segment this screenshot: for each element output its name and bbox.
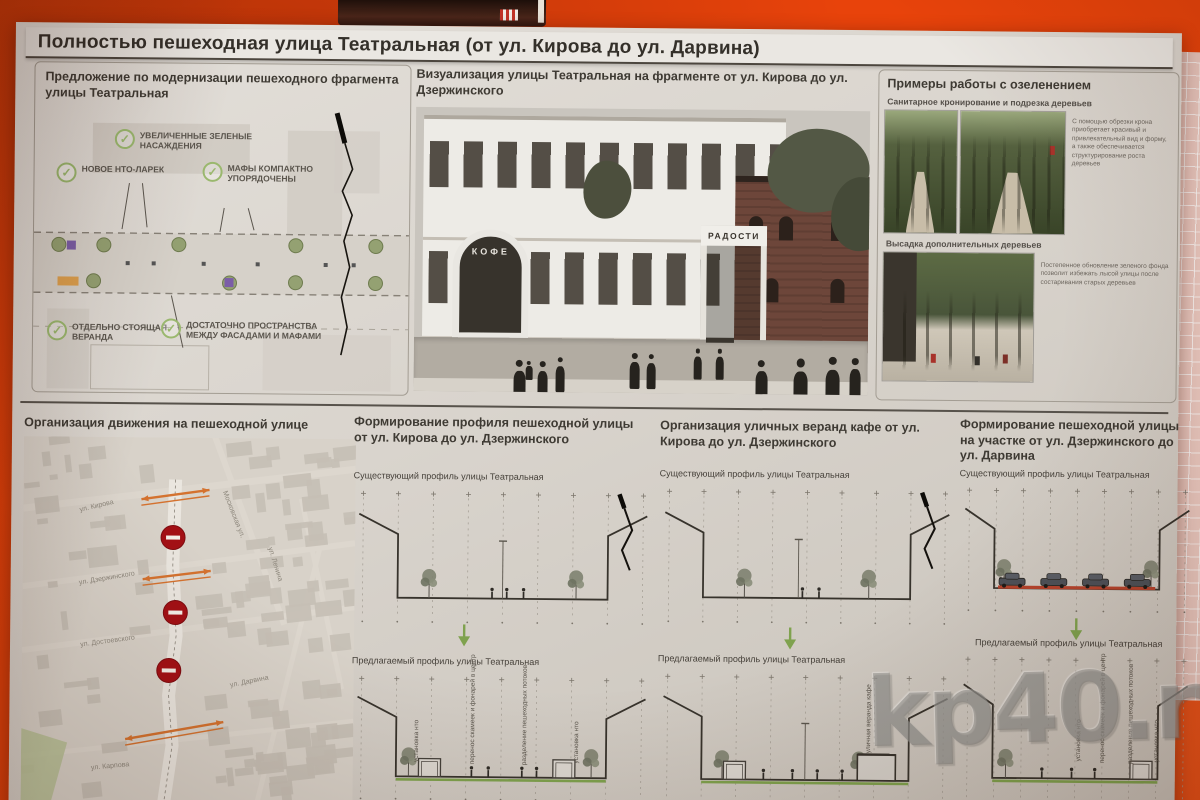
person-silhouette [849, 369, 860, 395]
existing-caption: Существующий профиль улицы Театральная [354, 470, 544, 482]
pruning-photo [960, 111, 1065, 234]
greening-heading: Примеры работы с озеленением [879, 70, 1178, 94]
map-building [87, 545, 119, 568]
pen-mark [924, 507, 935, 569]
check-icon: ✓ [202, 162, 222, 182]
map-building [135, 581, 154, 595]
profile-darvina-heading: Формирование пешеходной улицы на участке… [960, 417, 1190, 466]
pedestrian [975, 356, 980, 365]
grid-line [875, 497, 876, 619]
check-item: ✓ НОВОЕ НТО-ЛАРЕК [56, 162, 164, 183]
map-building [226, 441, 253, 458]
grid-line [536, 684, 537, 796]
down-arrow-icon [1068, 618, 1084, 640]
person-silhouette [793, 371, 807, 395]
grid-line [466, 683, 467, 795]
map-drawing [21, 436, 356, 800]
map-building [37, 655, 50, 670]
greening-note-1: С помощью обрезки крона приобретает крас… [1072, 118, 1172, 170]
street-render: КОФЕ РАДОСТИ [413, 107, 870, 395]
section-outline [665, 512, 950, 599]
section-divider [20, 401, 1168, 414]
cafe-entrance-arch: КОФЕ [452, 229, 529, 340]
check-icon: ✓ [56, 162, 76, 182]
grid-line [1022, 495, 1023, 607]
grid-line [432, 498, 433, 618]
map-building [265, 630, 289, 647]
greening-note-2: Постепенное обновление зеленого фонда по… [1041, 262, 1169, 289]
greening-caption-1: Санитарное кронирование и подрезка дерев… [887, 96, 1092, 108]
map-building [327, 688, 338, 696]
person-silhouette [555, 366, 564, 392]
grid-line [772, 496, 773, 618]
lamp-post [502, 541, 503, 599]
grid-line [1130, 496, 1131, 608]
map-building [137, 559, 149, 575]
map-building [216, 775, 227, 783]
map-building [302, 494, 330, 512]
grid-line [571, 684, 572, 796]
existing-caption: Существующий профиль улицы Театральная [960, 468, 1150, 480]
photo-of-poster: Полностью пешеходная улица Театральная (… [0, 0, 1200, 800]
person-silhouette [694, 357, 702, 380]
check-item: ✓ МАФЫ КОМПАКТНО УПОРЯДОЧЕНЫ [202, 162, 342, 185]
map-building [285, 603, 312, 623]
existing-caption: Существующий профиль улицы Театральная [660, 468, 850, 480]
map-building [269, 780, 294, 797]
paper-sliver [538, 0, 544, 23]
brick-window [830, 279, 844, 303]
grid-line [995, 494, 996, 606]
cafe-sign: КОФЕ [471, 246, 510, 332]
green-surface [701, 782, 908, 784]
person-silhouette [537, 371, 547, 395]
map-building [104, 514, 126, 531]
map-building [139, 464, 155, 484]
bench [706, 338, 734, 343]
map-building [266, 446, 281, 460]
green-surface [396, 779, 606, 781]
down-arrow-icon [456, 624, 472, 646]
brick-window [779, 216, 793, 240]
check-icon: ✓ [115, 129, 135, 149]
proposed-caption: Предлагаемый профиль улицы Театральная [352, 655, 539, 667]
grid-line [1103, 495, 1104, 607]
grid-line [537, 499, 538, 619]
proposed-profile-drawing: установка нто перенос скамеек и фонарей … [350, 670, 651, 800]
profile-svg [958, 482, 1195, 616]
map-building [331, 458, 340, 468]
grid-line [501, 684, 502, 796]
roadway [998, 587, 1155, 589]
map-building [212, 562, 227, 574]
existing-profile-drawing [352, 485, 653, 633]
radosti-portal: РАДОСТИ [700, 226, 767, 353]
map-building [302, 680, 322, 700]
map-building [34, 495, 60, 514]
pedestrian [1003, 354, 1008, 363]
proposed-caption: Предлагаемый профиль улицы Театральная [975, 637, 1162, 649]
existing-profile-drawing [658, 483, 955, 633]
map-building [265, 483, 281, 500]
grid-line [1049, 495, 1050, 607]
map-building [292, 556, 303, 567]
person-silhouette [526, 366, 533, 380]
grid-line [431, 683, 432, 795]
planting-photo [883, 252, 1034, 381]
map-building [38, 709, 62, 727]
pedestrian [931, 354, 936, 363]
profile-svg [658, 483, 955, 628]
striped-chip [500, 9, 518, 20]
watermark: kp40.ru [865, 647, 1200, 769]
street-sign [1050, 146, 1055, 155]
traffic-heading: Организация движения на пешеходной улице [24, 415, 344, 434]
greening-caption-2: Высадка дополнительных деревьев [886, 238, 1042, 249]
grid-line [841, 497, 842, 619]
proposal-panel: Предложение по модернизации пешеходного … [31, 61, 411, 396]
person-silhouette [630, 362, 640, 389]
profile-kirova-heading: Формирование профиля пешеходной улицы от… [354, 414, 634, 448]
map-building [314, 600, 342, 617]
map-building [204, 694, 227, 711]
visualization-heading: Визуализация улицы Театральная на фрагме… [414, 65, 872, 103]
map-building [227, 621, 247, 638]
grid-line [1157, 496, 1158, 608]
check-item: ✓ ДОСТАТОЧНО ПРОСТРАНСТВА МЕЖДУ ФАСАДАМИ… [161, 318, 336, 341]
map-building [42, 451, 52, 466]
check-icon: ✓ [47, 320, 67, 340]
map-building [49, 474, 58, 480]
grid-line [806, 497, 807, 619]
verandas-heading: Организация уличных веранд кафе от ул. К… [660, 418, 950, 452]
profile-svg [352, 485, 653, 628]
person-silhouette [755, 371, 767, 395]
check-icon: ✓ [161, 318, 181, 338]
person-silhouette [716, 357, 724, 380]
grid-line [737, 496, 738, 618]
map-building [244, 758, 255, 767]
map-building [311, 732, 327, 749]
map-building [79, 463, 93, 479]
map-building [87, 677, 100, 690]
map-building [308, 637, 324, 653]
greening-panel: Примеры работы с озеленением Санитарное … [875, 69, 1179, 403]
grid-line [1076, 495, 1077, 607]
notebook-edge-object [338, 0, 546, 27]
radosti-sign: РАДОСТИ [701, 226, 767, 247]
proposed-caption: Предлагаемый профиль улицы Театральная [658, 653, 845, 665]
person-silhouette [647, 363, 656, 389]
map-building [248, 575, 271, 597]
poster-title: Полностью пешеходная улица Театральная (… [38, 31, 760, 60]
green-surface [992, 781, 1157, 783]
lamp-post [798, 539, 799, 598]
traffic-map: ул. Кирова Московская ул. ул. Ленина ул.… [21, 436, 356, 800]
map-building [81, 781, 102, 798]
down-arrow-icon [782, 627, 798, 649]
pruning-photo [884, 110, 957, 233]
pen-mark [622, 508, 633, 570]
map-building [88, 445, 107, 460]
map-building [231, 485, 250, 500]
map-building [285, 727, 311, 749]
check-item: ✓ УВЕЛИЧЕННЫЕ ЗЕЛЕНЫЕ НАСАЖДЕНИЯ [115, 129, 255, 152]
grid-line [572, 499, 573, 619]
existing-profile-drawing [958, 482, 1195, 621]
grid-line [467, 498, 468, 618]
map-building [87, 694, 101, 704]
map-building [48, 581, 58, 588]
profile-svg [351, 670, 652, 800]
map-building [286, 763, 315, 781]
map-building [330, 633, 352, 652]
map-building [231, 590, 251, 603]
visualization-panel: Визуализация улицы Театральная на фрагме… [411, 65, 872, 400]
person-silhouette [513, 371, 525, 395]
lamp-post [805, 723, 806, 780]
person-silhouette [825, 370, 839, 395]
